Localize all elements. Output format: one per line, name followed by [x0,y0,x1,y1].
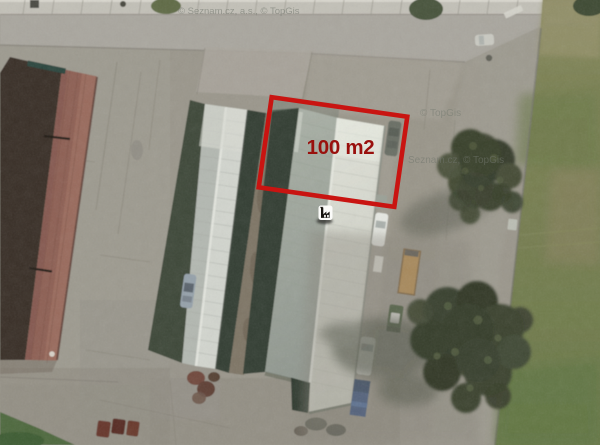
svg-text:Seznam.cz, © TopGis: Seznam.cz, © TopGis [408,155,504,166]
svg-text:100 m2: 100 m2 [307,136,375,159]
svg-text:© TopGis: © TopGis [420,108,461,119]
svg-text:© Seznam.cz, a.s., © TopGis: © Seznam.cz, a.s., © TopGis [178,6,300,17]
